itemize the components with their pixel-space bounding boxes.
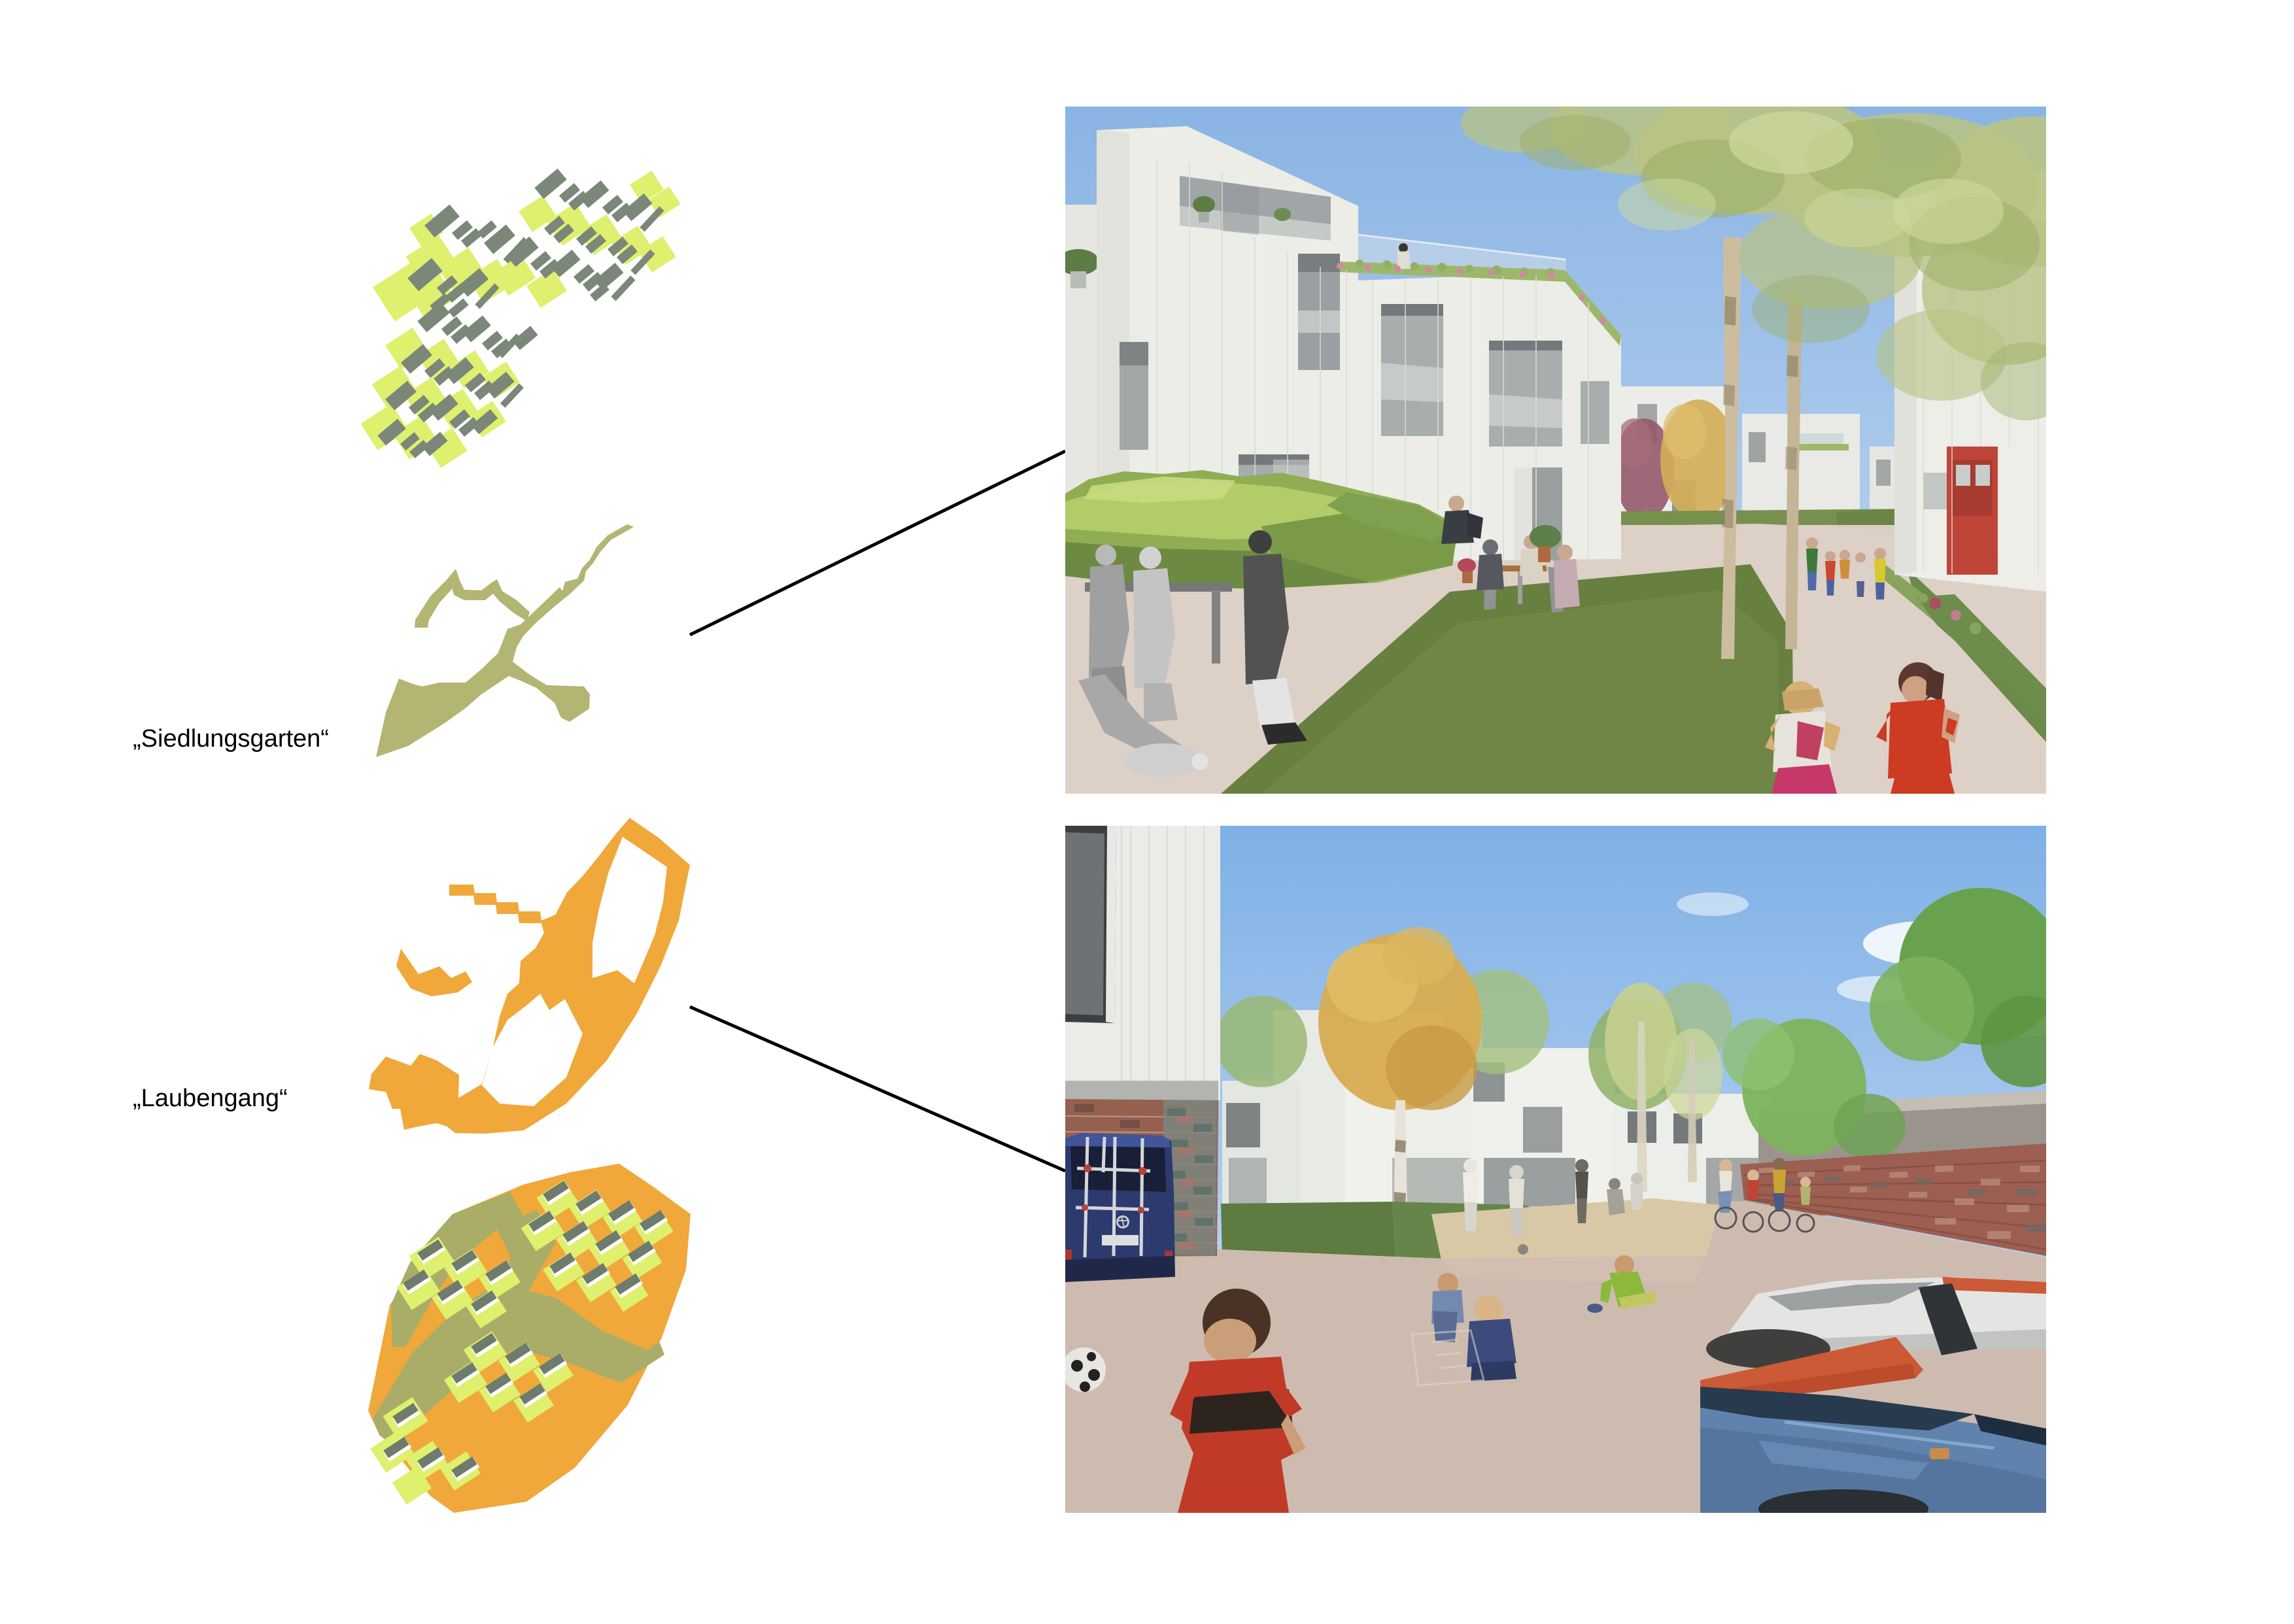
svg-text:„Siedlungsgarten“: „Siedlungsgarten“ [133,725,329,753]
svg-text:„Laubengang“: „Laubengang“ [133,1085,288,1112]
